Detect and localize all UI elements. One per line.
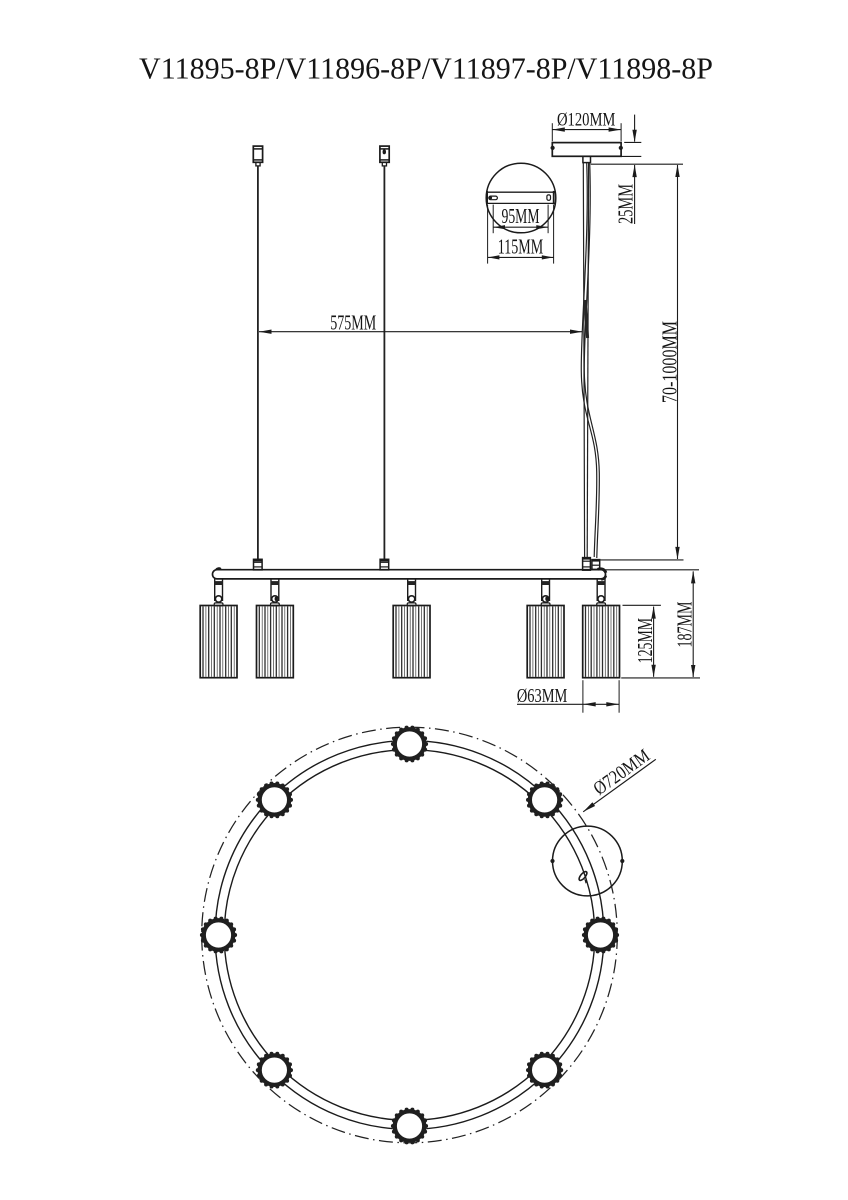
svg-text:70-1000MM: 70-1000MM — [658, 321, 682, 403]
svg-text:V11895-8P/V11896-8P/V11897-8P/: V11895-8P/V11896-8P/V11897-8P/V11898-8P — [139, 51, 713, 85]
svg-text:187MM: 187MM — [673, 602, 697, 648]
svg-text:115MM: 115MM — [498, 234, 544, 258]
svg-text:95MM: 95MM — [501, 204, 539, 228]
svg-text:Ø120MM: Ø120MM — [557, 109, 615, 130]
svg-text:Ø720MM: Ø720MM — [589, 744, 654, 799]
svg-text:Ø63MM: Ø63MM — [517, 685, 567, 707]
svg-text:125MM: 125MM — [633, 618, 657, 663]
svg-text:575MM: 575MM — [330, 311, 376, 335]
svg-text:25MM: 25MM — [614, 184, 638, 224]
